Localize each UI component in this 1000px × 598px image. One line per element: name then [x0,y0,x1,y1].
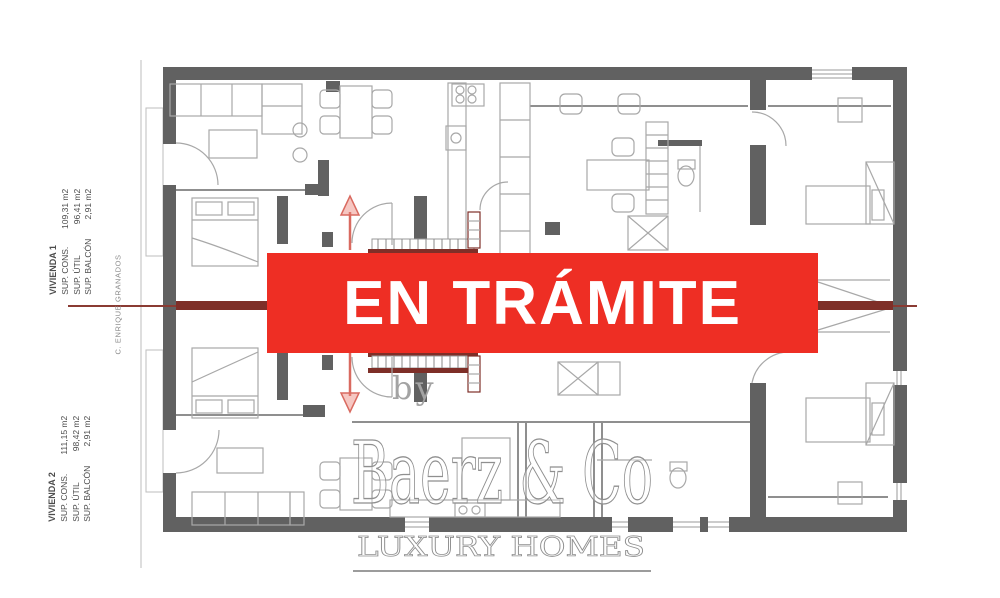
vivienda-2-row: SUP. CONS. 111,15 m2 [59,392,70,522]
stairs-down-arrow-icon [341,352,359,412]
vivienda-2-row: SUP. ÚTIL 98,42 m2 [71,392,82,522]
toilet-icon [678,160,695,186]
vivienda-1-title: VIVIENDA 1 [47,165,59,295]
stairs-upper [341,196,480,254]
watermark-by: by [392,369,437,407]
vivienda-2-title: VIVIENDA 2 [46,392,58,522]
vivienda-1-label: VIVIENDA 1 SUP. CONS. 109,31 m2 SUP. ÚTI… [47,165,95,295]
vivienda-2-label: VIVIENDA 2 SUP. CONS. 111,15 m2 SUP. ÚTI… [46,392,94,522]
floorplan-image: .w{fill:#616161;} .m{stroke:#8f8f8f;stro… [0,0,1000,598]
street-line [141,60,163,568]
bedroom-right-2 [752,352,894,504]
vivienda-1-row: SUP. CONS. 109,31 m2 [60,165,71,295]
en-tramite-banner: EN TRÁMITE [267,253,818,353]
stairs-up-arrow-icon [341,196,359,250]
watermark-tagline: LUXURY HOMES [357,532,645,563]
bathroom-2 [670,462,687,488]
sink-icon [446,126,466,150]
living-room-1 [170,84,392,185]
vivienda-1-row: SUP. BALCÓN 2,91 m2 [83,165,94,295]
stove-icon [452,84,484,106]
watermark-brand: Baerz & Co [351,424,653,524]
street-name-label: C. ENRIQUE GRANADOS [114,255,123,355]
elevator-icon [628,216,668,250]
elevator-icon-2 [558,362,620,395]
bedroom-1 [192,198,258,266]
vivienda-1-row: SUP. ÚTIL 96,41 m2 [72,165,83,295]
bedroom-right-1 [806,98,894,332]
window-top [812,67,852,80]
en-tramite-banner-text: EN TRÁMITE [343,268,742,339]
vivienda-2-row: SUP. BALCÓN 2,91 m2 [82,392,93,522]
watermark: by Baerz & Co LUXURY HOMES [351,369,653,571]
bathroom-1 [678,112,786,186]
